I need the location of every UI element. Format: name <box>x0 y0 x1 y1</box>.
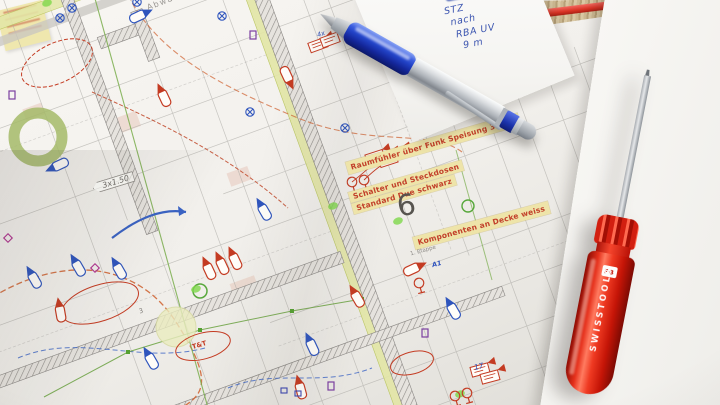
pale-yellow-circle <box>156 307 196 347</box>
magenta-symbols <box>4 234 99 272</box>
handwritten-notes: N Tem STZ nach RBA UV 9 m <box>436 0 506 55</box>
small-green-circle <box>462 200 474 212</box>
green-marker-ring <box>14 113 62 161</box>
room-fills <box>22 44 288 346</box>
screwdriver-brand-text: SWISSTOOLS <box>589 265 615 353</box>
photo-scene: Abwall 1. Etappe A1 T&T 17 4x 3 3x1.50 R… <box>0 0 720 405</box>
